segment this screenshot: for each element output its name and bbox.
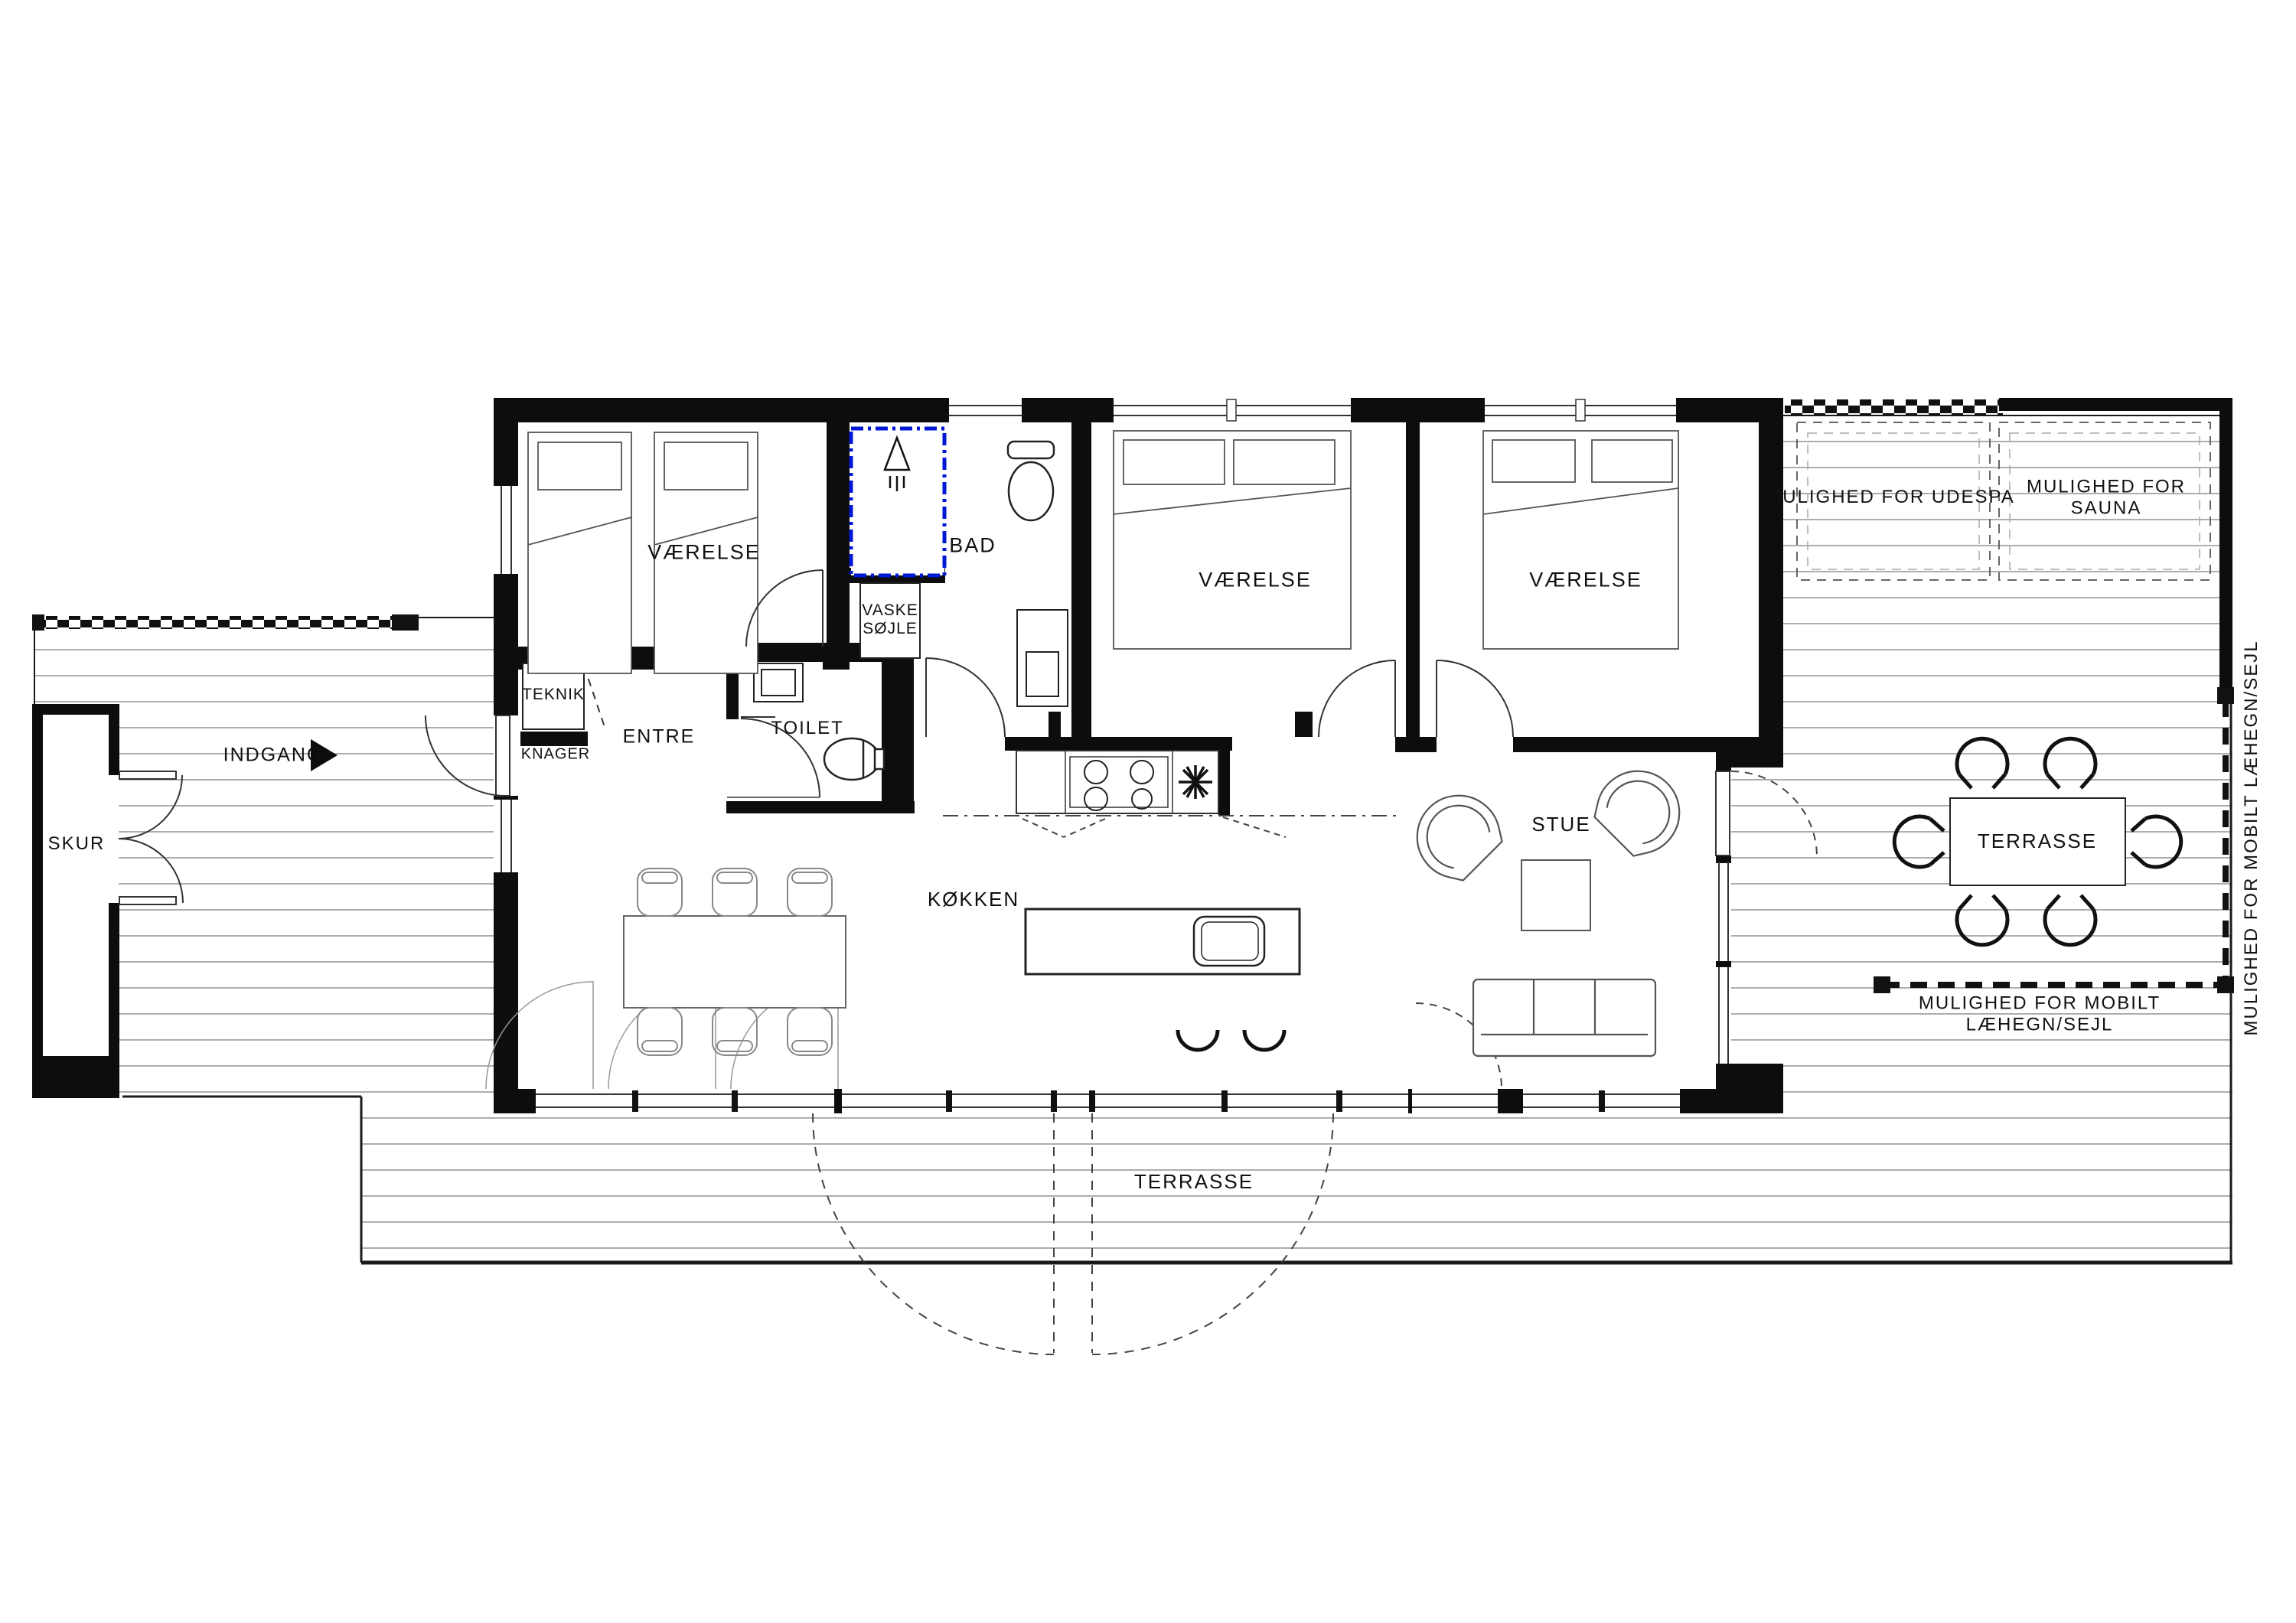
window-west-entre: [494, 800, 518, 872]
bed-double-2: [1483, 431, 1678, 649]
ceiling-projection: [943, 816, 1402, 837]
dining-table: [624, 916, 846, 1008]
window-south-stue-east: [1523, 1089, 1680, 1113]
label-stue: STUE: [1531, 813, 1590, 836]
armchair-left: [1400, 778, 1512, 890]
toilet-wc: [824, 738, 884, 780]
deck-left: [34, 629, 494, 1097]
label-kokken: KØKKEN: [928, 888, 1019, 911]
window-south-stue-west: [1270, 1089, 1408, 1113]
bar-stools: [1178, 1030, 1284, 1050]
shower: [851, 429, 944, 575]
window-north-bad: [949, 398, 1022, 422]
extractor-symbol: [1179, 765, 1212, 799]
coffee-table: [1521, 860, 1590, 930]
label-toilet: TOILET: [771, 718, 844, 739]
label-vaske-sojle: VASKE SØJLE: [862, 601, 918, 638]
window-north-bedroom3: [1485, 398, 1676, 422]
toilet-bad: [1008, 442, 1054, 520]
label-teknik: TEKNIK: [522, 686, 585, 704]
label-knager: KNAGER: [521, 746, 590, 764]
armchair-right: [1585, 754, 1697, 865]
bed-twin-1: [528, 432, 631, 673]
plan-drawing: [0, 0, 2296, 1623]
bedroom2-door: [1319, 660, 1395, 737]
label-sauna: MULIGHED FOR SAUNA: [2011, 476, 2201, 518]
label-terrasse-south: TERRASSE: [1134, 1171, 1254, 1194]
label-laehegn-south: MULIGHED FOR MOBILT LÆHEGN/SEJL: [1912, 992, 2168, 1035]
label-udespa: MULIGHED FOR UDESPA: [1766, 487, 2015, 508]
hatch-strip-left: [32, 614, 419, 631]
bedroom3-door: [1437, 660, 1513, 737]
sofa: [1473, 979, 1655, 1056]
label-skur: SKUR: [48, 833, 106, 855]
bed-double-1: [1114, 431, 1351, 649]
vanity-bad: [1017, 610, 1068, 706]
window-west-bedroom1: [494, 486, 518, 574]
bad-door: [926, 658, 1005, 737]
hatch-strip-east: [1785, 399, 2003, 415]
toilet-sink: [754, 663, 803, 702]
label-vaerelse-2: VÆRELSE: [1199, 568, 1312, 592]
kitchen-island: [1026, 909, 1300, 974]
label-entre: ENTRE: [623, 726, 696, 748]
label-vaerelse-1: VÆRELSE: [647, 540, 761, 564]
window-south-kitchen: [536, 1089, 834, 1113]
label-vaerelse-3: VÆRELSE: [1529, 568, 1642, 592]
deck-south-terrace: [361, 1097, 1783, 1263]
label-terrasse-east: TERRASSE: [1978, 830, 2097, 853]
skur-walls: [32, 704, 119, 1098]
label-indgang: INDGANG: [223, 745, 324, 767]
floor-plan: VÆRELSE BAD VASKE SØJLE TEKNIK KNAGER EN…: [0, 0, 2296, 1623]
window-north-bedroom2: [1114, 398, 1351, 422]
label-bad: BAD: [949, 533, 996, 557]
label-laehegn-east: MULIGHED FOR MOBILT LÆHEGN/SEJL: [2241, 640, 2262, 1035]
